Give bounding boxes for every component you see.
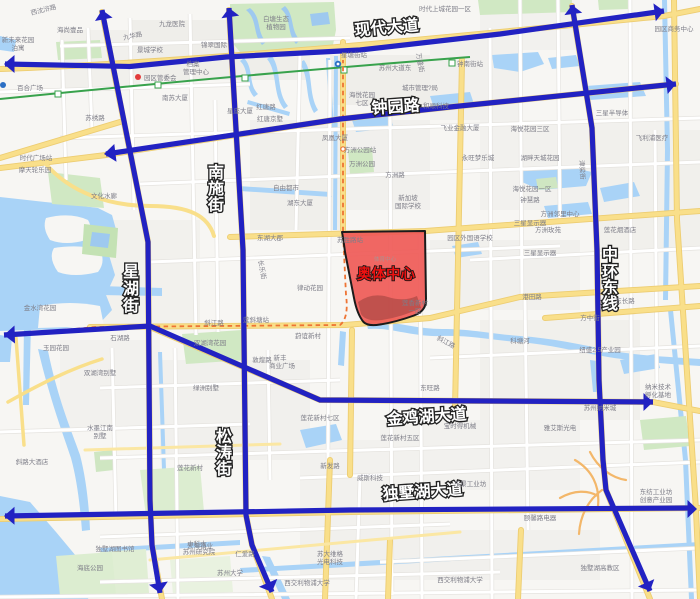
svg-text:南苏大厦: 南苏大厦: [162, 93, 189, 102]
svg-text:莲香新村: 莲香新村: [402, 298, 429, 307]
svg-text:苏胜路站: 苏胜路站: [337, 235, 364, 244]
svg-text:锦翠国际: 锦翠国际: [201, 40, 228, 49]
svg-text:莲花烟酒店: 莲花烟酒店: [604, 225, 637, 234]
svg-text:莲花新村: 莲花新村: [177, 463, 204, 472]
svg-text:九龙医院: 九龙医院: [159, 19, 186, 28]
svg-text:白塘生态: 白塘生态: [263, 14, 290, 23]
svg-text:永旺梦乐城: 永旺梦乐城: [462, 153, 495, 162]
svg-text:一区: 一区: [409, 307, 423, 315]
svg-text:涛: 涛: [216, 443, 232, 462]
svg-text:别墅: 别墅: [94, 431, 108, 440]
svg-text:湖: 湖: [123, 280, 139, 298]
svg-text:水墨江南: 水墨江南: [87, 423, 114, 432]
svg-text:莲花新村五区: 莲花新村五区: [381, 433, 421, 442]
svg-text:星: 星: [123, 263, 139, 281]
svg-text:方洲邻里中心: 方洲邻里中心: [541, 209, 581, 218]
svg-text:双湖湾别墅: 双湖湾别墅: [84, 368, 117, 377]
svg-text:凤凰大厦: 凤凰大厦: [322, 133, 349, 142]
svg-text:摩天轮乐园: 摩天轮乐园: [19, 165, 52, 174]
svg-text:纳米技术: 纳米技术: [645, 382, 672, 391]
svg-text:雅艾斯光电: 雅艾斯光电: [544, 423, 577, 432]
svg-text:海悦花园一区: 海悦花园一区: [513, 184, 553, 193]
svg-text:光电科技: 光电科技: [317, 557, 344, 566]
svg-text:体育中心: 体育中心: [374, 255, 397, 263]
svg-text:时代广场站: 时代广场站: [20, 153, 53, 162]
svg-text:葑谊新村: 葑谊新村: [295, 331, 322, 340]
svg-text:新丰: 新丰: [274, 353, 288, 362]
svg-text:苏绣路: 苏绣路: [85, 113, 105, 122]
svg-text:三星显示器: 三星显示器: [514, 219, 547, 227]
svg-text:绿洲别墅: 绿洲别墅: [193, 383, 220, 392]
svg-text:施: 施: [208, 179, 224, 198]
svg-text:莲花新村七区: 莲花新村七区: [301, 413, 341, 422]
svg-text:东纺工业坊: 东纺工业坊: [640, 487, 673, 496]
svg-text:宝时得机械: 宝时得机械: [444, 421, 477, 430]
svg-text:万洲公园: 万洲公园: [349, 160, 375, 168]
svg-text:湖畔天城花园: 湖畔天城花园: [521, 153, 560, 162]
svg-text:三星显示器: 三星显示器: [524, 249, 557, 257]
svg-text:颐馨路电器: 颐馨路电器: [524, 513, 557, 522]
svg-text:海底公园: 海底公园: [77, 563, 103, 572]
svg-text:植物园: 植物园: [266, 22, 286, 31]
svg-text:科塘河: 科塘河: [510, 336, 530, 345]
svg-text:独墅湖图书馆: 独墅湖图书馆: [96, 544, 136, 553]
svg-text:城市管理?局: 城市管理?局: [402, 83, 438, 92]
svg-text:钟南街站: 钟南街站: [457, 59, 484, 68]
svg-text:双湖湾花园: 双湖湾花园: [194, 338, 227, 347]
svg-text:南: 南: [208, 163, 224, 182]
svg-text:新未来花园: 新未来花园: [2, 35, 35, 44]
svg-text:斜路大酒店: 斜路大酒店: [16, 457, 49, 466]
svg-text:飞利浦医疗: 飞利浦医疗: [636, 133, 669, 142]
svg-text:东: 东: [602, 278, 618, 297]
svg-text:星塘街站: 星塘街站: [341, 50, 368, 59]
svg-text:仁爱路: 仁爱路: [235, 549, 255, 558]
svg-text:奥体中心: 奥体中心: [357, 265, 415, 283]
svg-text:街: 街: [207, 195, 224, 214]
svg-text:玉园花园: 玉园花园: [43, 343, 69, 352]
svg-text:时代上城花园一区: 时代上城花园一区: [419, 4, 472, 13]
svg-text:威斯科技: 威斯科技: [357, 473, 384, 482]
svg-text:管理中心: 管理中心: [183, 67, 210, 76]
svg-text:苏州纳米城: 苏州纳米城: [584, 403, 617, 412]
svg-text:湖东大厦: 湖东大厦: [287, 198, 314, 207]
svg-text:独墅湖高教区: 独墅湖高教区: [581, 563, 621, 572]
svg-text:金水湾花园: 金水湾花园: [24, 303, 57, 312]
svg-text:园区外国语学校: 园区外国语学校: [447, 233, 493, 242]
svg-text:七区: 七区: [356, 98, 370, 107]
svg-text:星座大厦: 星座大厦: [227, 106, 254, 115]
svg-text:街: 街: [215, 459, 232, 478]
svg-text:环: 环: [602, 263, 618, 281]
svg-text:西交利物浦大学: 西交利物浦大学: [437, 575, 483, 584]
svg-text:创意产业园: 创意产业园: [640, 495, 673, 504]
svg-text:石湖路: 石湖路: [110, 333, 130, 342]
svg-text:海悦花园三区: 海悦花园三区: [511, 124, 551, 133]
svg-text:飞业金融大厦: 飞业金融大厦: [441, 123, 481, 132]
svg-text:中: 中: [602, 245, 618, 264]
svg-text:新发路: 新发路: [320, 461, 340, 470]
svg-text:东景工业坊: 东景工业坊: [454, 479, 487, 488]
svg-text:苏州大道东: 苏州大道东: [379, 63, 412, 72]
svg-text:西交利物浦大学: 西交利物浦大学: [284, 578, 330, 587]
svg-text:苏州大学: 苏州大学: [217, 568, 244, 577]
svg-text:东长路: 东长路: [615, 296, 635, 305]
svg-text:港田路: 港田路: [522, 292, 542, 301]
svg-text:红唐路: 红唐路: [256, 102, 276, 111]
svg-text:商业广场: 商业广场: [269, 361, 296, 370]
svg-text:红唐京墅: 红唐京墅: [257, 114, 284, 123]
svg-text:斜江路: 斜江路: [204, 318, 224, 327]
svg-text:孵化基地: 孵化基地: [645, 390, 672, 399]
svg-text:莲斜塘站: 莲斜塘站: [243, 315, 270, 324]
svg-text:三星半导体: 三星半导体: [596, 108, 629, 117]
svg-text:园区商务中心: 园区商务中心: [655, 24, 695, 33]
svg-text:钟慧路: 钟慧路: [520, 195, 540, 204]
svg-text:档案: 档案: [187, 59, 201, 68]
svg-text:敦煌路: 敦煌路: [252, 355, 272, 364]
svg-text:方洲公园站: 方洲公园站: [344, 145, 377, 154]
svg-text:方洲路: 方洲路: [385, 170, 405, 179]
svg-text:街: 街: [122, 296, 139, 315]
svg-text:新加坡: 新加坡: [398, 193, 418, 202]
svg-text:方洲玫苑: 方洲玫苑: [535, 225, 562, 234]
svg-text:东湖大郡: 东湖大郡: [257, 233, 284, 242]
svg-text:国际学校: 国际学校: [395, 201, 422, 210]
svg-text:云海镇业: 云海镇业: [187, 541, 214, 550]
svg-text:东旺路: 东旺路: [420, 383, 440, 392]
svg-text:园区管委会: 园区管委会: [144, 73, 177, 82]
svg-text:方中街: 方中街: [580, 313, 600, 322]
svg-text:百合广场: 百合广场: [17, 83, 44, 92]
svg-text:苏大维格: 苏大维格: [317, 549, 344, 558]
svg-text:景城学校: 景城学校: [137, 45, 164, 54]
svg-text:泊寓: 泊寓: [12, 43, 25, 52]
svg-text:文化水廊: 文化水廊: [91, 191, 118, 200]
svg-text:纽盛2.5产业园: 纽盛2.5产业园: [579, 345, 621, 354]
svg-text:自由都市: 自由都市: [273, 183, 300, 192]
svg-text:海悦花园: 海悦花园: [349, 90, 375, 99]
svg-text:和顺科技: 和顺科技: [423, 101, 450, 110]
svg-text:松: 松: [216, 427, 232, 446]
svg-text:海尚壹品: 海尚壹品: [57, 25, 83, 34]
svg-text:律动花园: 律动花园: [297, 283, 323, 292]
